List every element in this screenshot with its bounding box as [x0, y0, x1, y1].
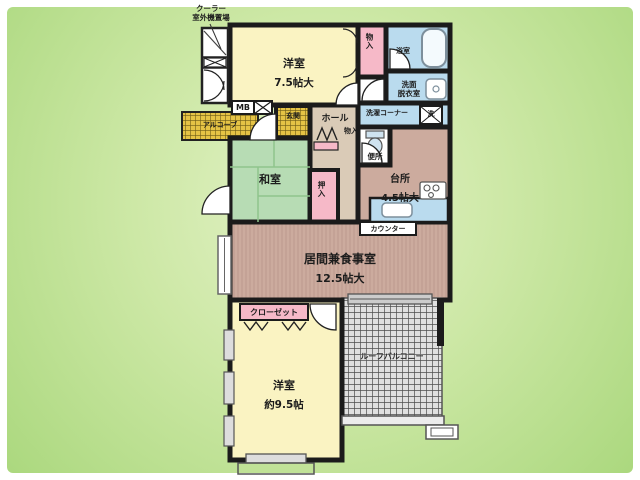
living-dining-size: 12.5帖大	[315, 272, 364, 285]
counter-label: カウンター	[360, 225, 416, 233]
hall-label: ホール	[312, 114, 358, 125]
balcony-wall-segment	[437, 298, 444, 346]
closet-label: クローゼット	[242, 308, 306, 318]
hall-storage-shelf	[314, 142, 338, 150]
hall-storage-label: 物入	[341, 127, 361, 135]
bedroom2-window-ledge	[238, 463, 314, 474]
meter-box-label: MB	[232, 103, 254, 113]
living-dining-label: 居間兼食事室 12.5帖大	[270, 248, 410, 286]
balcony-label: ルーフバルコニー	[350, 352, 434, 362]
washroom-line1: 洗面	[402, 80, 417, 89]
japanese-room-label: 和室	[242, 173, 298, 186]
bedroom2-left-window-3	[224, 416, 234, 446]
living-dining-name: 居間兼食事室	[304, 252, 376, 266]
washer-label: 洗	[424, 110, 438, 118]
kitchen-size: 4.5帖大	[381, 193, 419, 204]
cooler-note-line2: 室外機置場	[192, 13, 230, 22]
alcove-label: アルコーブ	[184, 121, 256, 129]
laundry-label: 洗濯コーナー	[356, 109, 418, 117]
bath-label: 浴室	[390, 47, 416, 55]
bedroom2-label: 洋室 約9.5帖	[244, 374, 324, 412]
toilet-label: 便所	[362, 152, 388, 161]
washbasin-icon	[426, 79, 446, 99]
cooler-note: クーラー 室外機置場	[182, 4, 240, 22]
bedroom2-name: 洋室	[273, 379, 295, 392]
kitchen-label: 台所 4.5帖大	[368, 167, 432, 205]
washroom-line2: 脱衣室	[398, 89, 421, 98]
cooler-unit-area	[202, 28, 228, 103]
bedroom1-size: 7.5帖大	[274, 77, 314, 89]
entrance-label: 玄関	[278, 112, 308, 120]
oshiire-label: 押入	[317, 181, 326, 198]
bathtub-icon	[422, 29, 446, 67]
kitchen-name: 台所	[390, 174, 410, 185]
storage-top-label: 物入	[365, 33, 374, 50]
japanese-room-window-arc	[202, 186, 230, 214]
bedroom2-size: 約9.5帖	[264, 399, 304, 411]
washroom-label: 洗面 脱衣室	[390, 80, 428, 98]
bedroom2-left-window-2	[224, 372, 234, 404]
cooler-note-line1: クーラー	[196, 4, 226, 13]
bedroom2-bottom-window	[246, 454, 306, 463]
balcony-railing	[342, 416, 444, 425]
floor-plan: クーラー 室外機置場 洋室 7.5帖大 物入 浴室 洗面 脱衣室 洗濯コーナー …	[0, 0, 640, 480]
bedroom1-label: 洋室 7.5帖大	[254, 52, 334, 90]
bedroom1-name: 洋室	[283, 57, 305, 70]
bedroom2-left-window-1	[224, 330, 234, 360]
balcony-step-inner	[431, 428, 453, 436]
